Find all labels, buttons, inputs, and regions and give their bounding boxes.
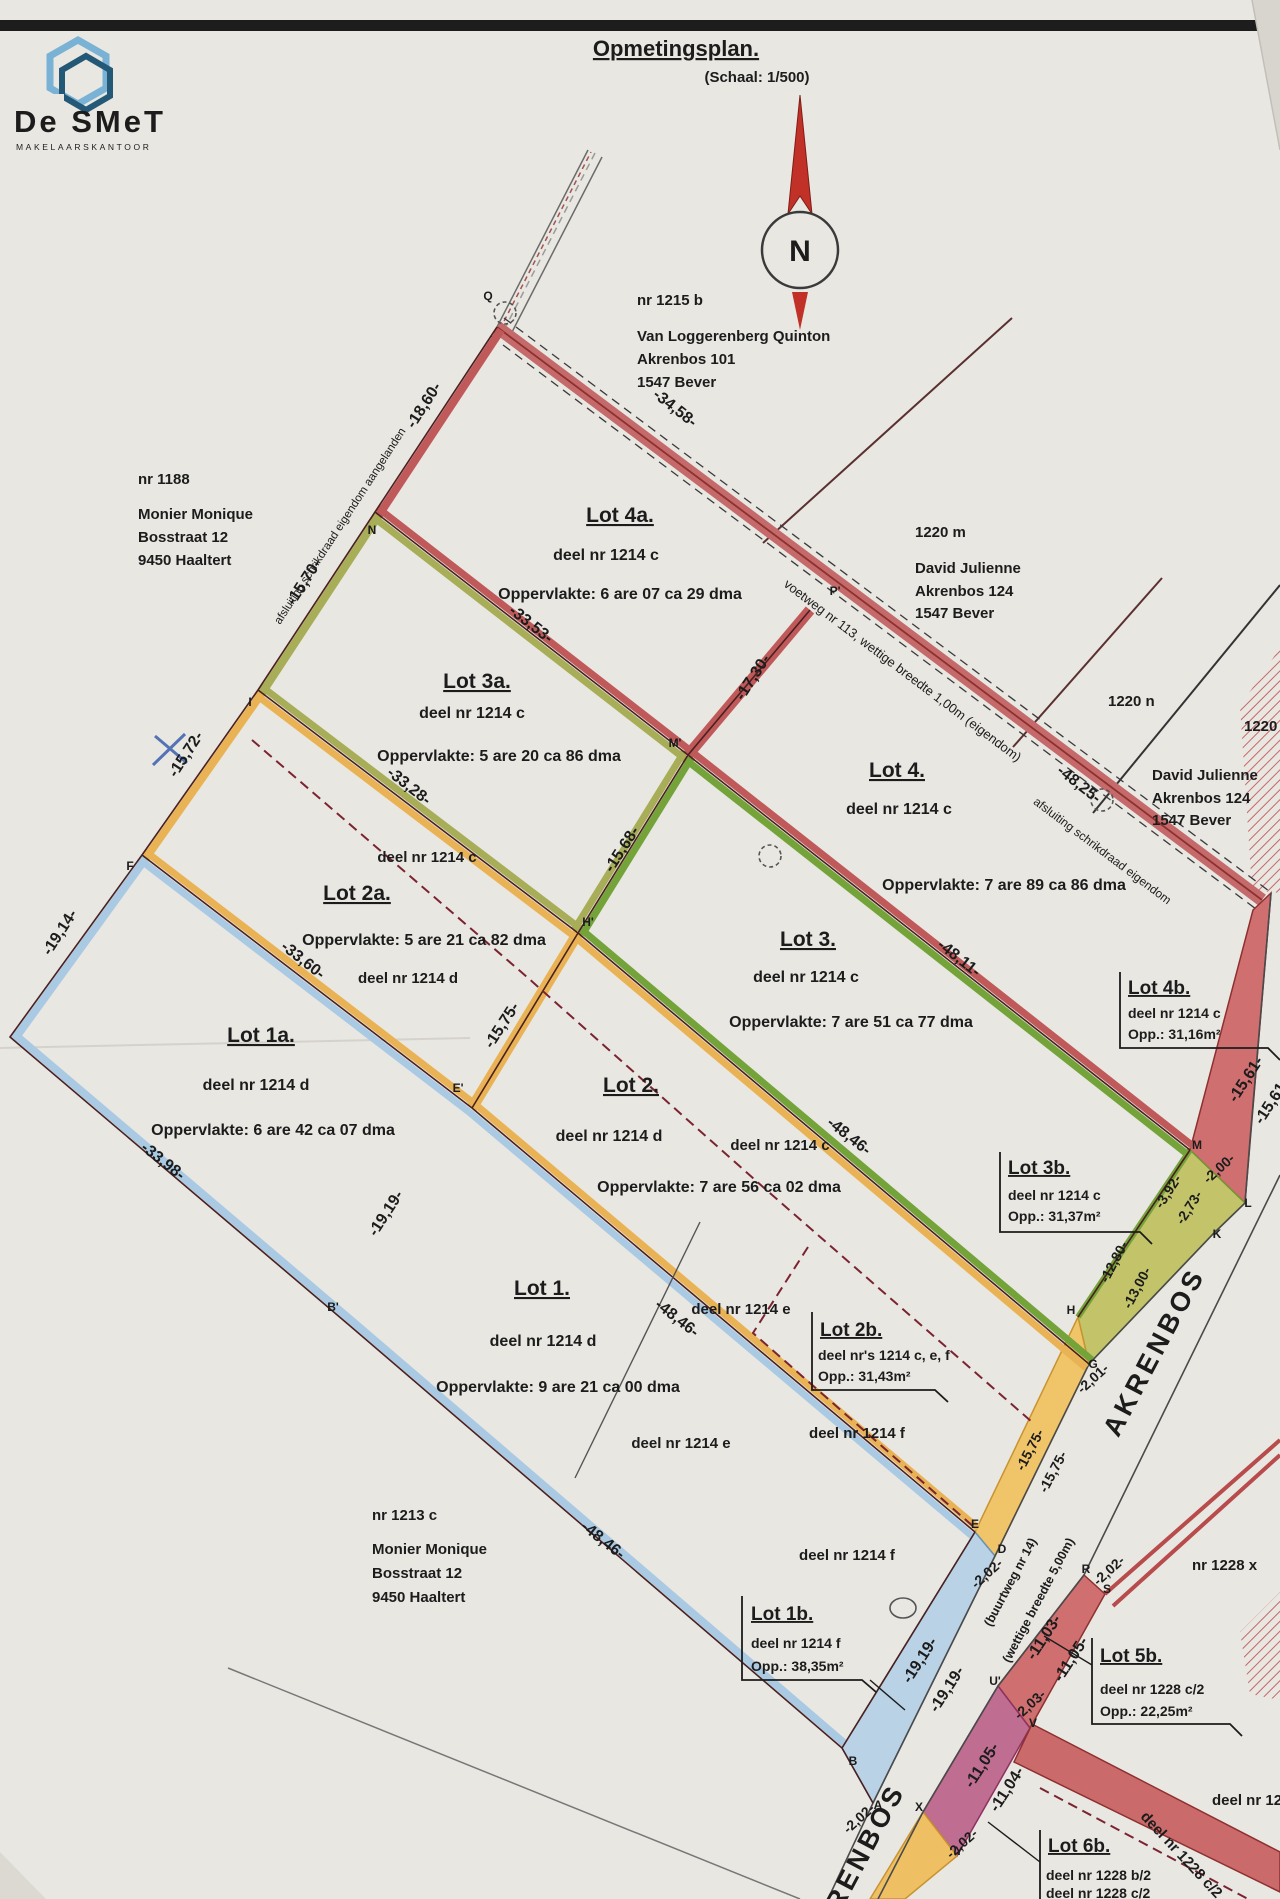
lot-captions-text: Oppervlakte: 7 are 51 ca 77 dma (729, 1014, 973, 1031)
vertex-letters-text: M (1192, 1138, 1202, 1152)
owner-blocks-text: 1220 n (1108, 693, 1155, 710)
lot-captions-text: Lot 3. (780, 928, 836, 951)
vertex-letters-text: G (1088, 1357, 1097, 1371)
lot-captions-text: Oppervlakte: 9 are 21 ca 00 dma (436, 1379, 680, 1396)
deel-labels-text: deel nr 1214 f (799, 1547, 896, 1564)
lot-captions-text: Lot 4. (869, 759, 925, 782)
boxed-lot-captions-text: deel nr 1214 c (1128, 1005, 1221, 1021)
owner-blocks-text: Akrenbos 124 (1152, 790, 1251, 807)
lot-captions-text: Oppervlakte: 7 are 89 ca 86 dma (882, 877, 1126, 894)
compass-north-label: N (789, 235, 811, 268)
lot-captions-text: Lot 1a. (227, 1024, 295, 1047)
vertex-letters-text: U' (989, 1674, 1001, 1688)
vertex-letters-text: P' (830, 584, 841, 598)
owner-blocks-text: Van Loggerenberg Quinton (637, 328, 830, 345)
owner-blocks-text: 1220 m (915, 524, 966, 541)
lot-captions-text: deel nr 1214 c (553, 547, 659, 564)
owner-blocks-text: 9450 Haaltert (138, 552, 231, 569)
title-block-text: Opmetingsplan. (593, 36, 759, 61)
lot-captions-text: Oppervlakte: 6 are 07 ca 29 dma (498, 586, 742, 603)
deel-labels-text: deel nr 1214 e (691, 1301, 790, 1318)
vertex-letters-text: K (1213, 1227, 1222, 1241)
boxed-lot-captions-text: Lot 6b. (1048, 1836, 1110, 1857)
owner-blocks-text: nr 1213 c (372, 1507, 437, 1524)
deel-labels-text: deel nr 1214 c (730, 1137, 829, 1154)
lot-captions-text: Oppervlakte: 5 are 21 ca 82 dma (302, 932, 546, 949)
vertex-letters-text: N (368, 523, 377, 537)
owner-blocks-text: Akrenbos 101 (637, 351, 735, 368)
deel-labels-text: deel nr 1214 e (631, 1435, 730, 1452)
boxed-lot-captions-text: Lot 1b. (751, 1604, 813, 1625)
lot-captions-text: deel nr 1214 d (556, 1128, 663, 1145)
logo-name: De SMeT (14, 104, 166, 139)
boxed-lot-captions-text: deel nr 1228 c/2 (1046, 1885, 1151, 1899)
logo-subtitle: MAKELAARSKANTOOR (16, 142, 151, 152)
lot-captions-text: Lot 3a. (443, 670, 511, 693)
vertex-letters-text: I (248, 695, 251, 709)
vertex-letters-text: Q (483, 289, 492, 303)
lot-captions-text: Oppervlakte: 6 are 42 ca 07 dma (151, 1122, 395, 1139)
boxed-lot-captions-text: Lot 3b. (1008, 1158, 1070, 1179)
lot-captions-text: Oppervlakte: 5 are 20 ca 86 dma (377, 748, 621, 765)
vertex-letters-text: E (971, 1517, 979, 1531)
desmet-logo-text: De SMeT MAKELAARSKANTOOR (14, 104, 166, 152)
survey-plan-page: Opmetingsplan.(Schaal: 1/500)Lot 4a.deel… (0, 0, 1280, 1899)
owner-blocks-text: 1220 (1244, 718, 1277, 735)
owner-blocks-text: Akrenbos 124 (915, 583, 1014, 600)
lot-captions-text: Lot 2a. (323, 882, 391, 905)
boxed-lot-captions-text: Opp.: 31,43m² (818, 1368, 911, 1384)
vertex-letters-text: D (998, 1542, 1007, 1556)
vertex-letters-text: H' (582, 915, 594, 929)
boxed-lot-captions-text: Lot 5b. (1100, 1646, 1162, 1667)
owner-blocks-text: nr 1215 b (637, 292, 703, 309)
owner-blocks-text: David Julienne (915, 560, 1021, 577)
scan-top-border (0, 20, 1280, 31)
lot-captions-text: deel nr 1214 d (490, 1333, 597, 1350)
lot-captions-text: Oppervlakte: 7 are 56 ca 02 dma (597, 1179, 841, 1196)
owner-blocks-text: Monier Monique (372, 1541, 487, 1558)
boxed-lot-captions-text: Opp.: 22,25m² (1100, 1703, 1193, 1719)
vertex-letters-text: S (1103, 1582, 1111, 1596)
vertex-letters-text: R (1082, 1562, 1091, 1576)
vertex-letters-text: H (1067, 1303, 1076, 1317)
title-block-text: (Schaal: 1/500) (704, 69, 809, 86)
owner-blocks-text: Bosstraat 12 (138, 529, 228, 546)
owner-blocks-text: nr 1228 x (1192, 1557, 1258, 1574)
owner-blocks-text: nr 1188 (138, 471, 190, 488)
boxed-lot-captions-text: Lot 2b. (820, 1320, 882, 1341)
boxed-lot-captions-text: deel nr's 1214 c, e, f (818, 1347, 950, 1363)
vertex-letters-text: E' (453, 1081, 464, 1095)
owner-blocks-text: Monier Monique (138, 506, 253, 523)
deel-labels-text: deel nr 1214 d (358, 970, 458, 987)
owner-blocks-text: 1547 Bever (637, 374, 716, 391)
deel-labels-text: deel nr 1214 f (809, 1425, 906, 1442)
vertex-letters-text: M' (669, 736, 682, 750)
boxed-lot-captions-text: deel nr 1214 c (1008, 1187, 1101, 1203)
vertex-letters-text: X (915, 1800, 923, 1814)
boxed-lot-captions-text: Opp.: 38,35m² (751, 1658, 844, 1674)
vertex-letters-text: B' (327, 1300, 339, 1314)
boxed-lot-captions-text: deel nr 1228 c/2 (1100, 1681, 1205, 1697)
lot-captions-text: deel nr 1214 c (753, 969, 859, 986)
vertex-letters-text: L (1244, 1196, 1251, 1210)
boxed-lot-captions-text: Opp.: 31,37m² (1008, 1208, 1101, 1224)
boxed-lot-captions-text: Opp.: 31,16m² (1128, 1026, 1221, 1042)
owner-blocks-text: 1547 Bever (1152, 812, 1231, 829)
plan-drawing: Opmetingsplan.(Schaal: 1/500)Lot 4a.deel… (0, 0, 1280, 1899)
boxed-lot-captions-text: deel nr 1214 f (751, 1635, 841, 1651)
vertex-letters-text: F (126, 859, 133, 873)
lot-captions-text: Lot 2. (603, 1074, 659, 1097)
lot-captions-text: deel nr 1214 c (846, 801, 952, 818)
vertex-letters-text: B (849, 1754, 858, 1768)
boxed-lot-captions-text: Lot 4b. (1128, 978, 1190, 999)
owner-blocks-text: David Julienne (1152, 767, 1258, 784)
lot-captions-text: deel nr 1214 c (419, 705, 525, 722)
owner-blocks-text: Bosstraat 12 (372, 1565, 462, 1582)
owner-blocks-text: 9450 Haaltert (372, 1589, 465, 1606)
vertex-letters-text: Y (955, 1844, 963, 1858)
owner-blocks-text: 1547 Bever (915, 605, 994, 622)
owner-blocks-text: deel nr 1228 (1212, 1792, 1280, 1809)
boxed-lot-captions-text: deel nr 1228 b/2 (1046, 1867, 1151, 1883)
lot-captions-text: Lot 4a. (586, 504, 654, 527)
lot-captions-text: Lot 1. (514, 1277, 570, 1300)
deel-labels-text: deel nr 1214 c (377, 849, 476, 866)
vertex-letters-text: V (1029, 1716, 1037, 1730)
lot-captions-text: deel nr 1214 d (203, 1077, 310, 1094)
